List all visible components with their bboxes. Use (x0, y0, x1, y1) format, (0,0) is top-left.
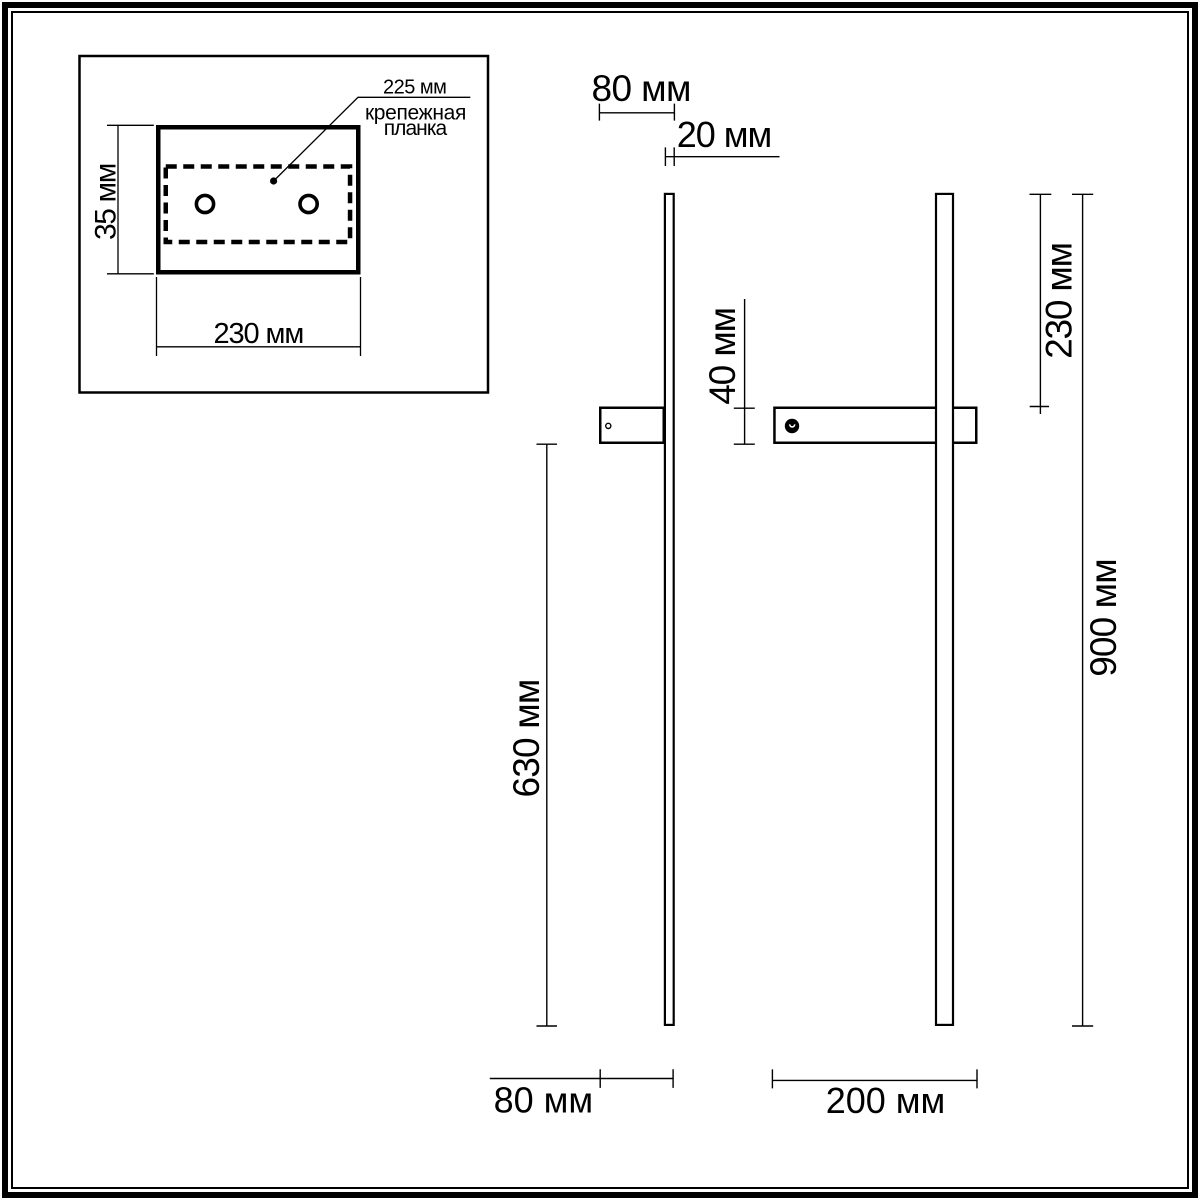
svg-text:230 мм: 230 мм (213, 318, 303, 350)
svg-text:20 мм: 20 мм (677, 114, 772, 155)
svg-text:40 мм: 40 мм (702, 308, 743, 405)
svg-text:630 мм: 630 мм (506, 679, 547, 797)
svg-text:900 мм: 900 мм (1083, 559, 1124, 677)
svg-text:35 мм: 35 мм (90, 164, 123, 240)
svg-text:планка: планка (384, 117, 448, 140)
svg-text:80 мм: 80 мм (494, 1080, 594, 1121)
svg-text:230 мм: 230 мм (1039, 243, 1080, 359)
svg-text:225 мм: 225 мм (383, 77, 446, 99)
svg-text:80 мм: 80 мм (592, 68, 691, 109)
svg-text:200 мм: 200 мм (826, 1080, 946, 1121)
